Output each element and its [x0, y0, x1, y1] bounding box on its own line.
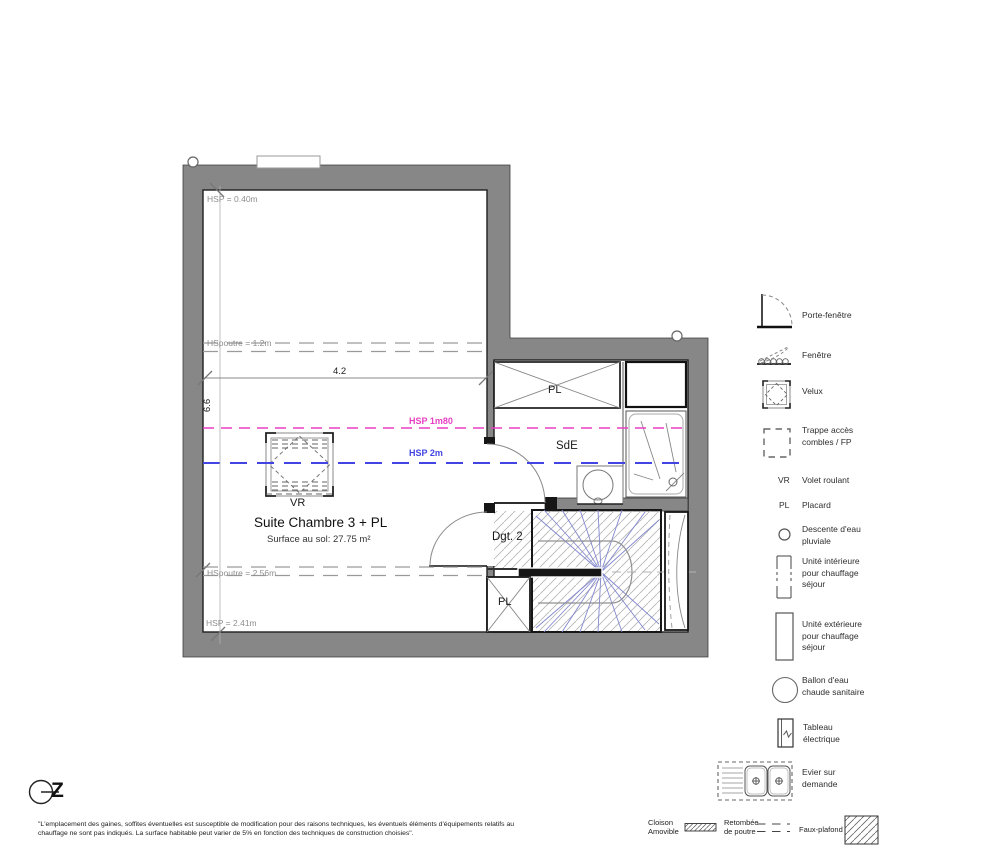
room-title: Suite Chambre 3 + PL — [254, 515, 387, 530]
legend-retombee-poutre: Retombée de poutre — [724, 818, 759, 836]
height-label-hsp2m: HSP 2m — [409, 448, 443, 458]
floor-plan-page: HSP = 0.40m HSpoutre = 1.2m 4.2 6.6 HSP … — [0, 0, 1000, 857]
cloison-amovible-icon — [685, 824, 716, 832]
velux-window — [266, 433, 333, 496]
legend-unite-interieure: Unité intérieure pour chauffage séjour — [802, 556, 860, 591]
evier-icon — [718, 762, 792, 800]
roof-notch — [257, 156, 320, 168]
fenetre-icon — [757, 347, 791, 364]
legend-porte-fenetre: Porte-fenêtre — [802, 310, 852, 322]
rainwater-downpipe-icon — [188, 157, 198, 167]
sde-label: SdE — [556, 440, 578, 452]
height-label-hsp1m80: HSP 1m80 — [409, 416, 453, 426]
legend-velux: Velux — [802, 386, 823, 398]
legend-cloison-amovible: Cloison Amovible — [648, 818, 679, 836]
trappe-icon — [764, 429, 790, 457]
legend-descente-eau: Descente d'eau pluviale — [802, 524, 861, 547]
vr-label: VR — [290, 497, 305, 509]
placard-bottom-label: PL — [498, 596, 511, 608]
dimension-height: 6.6 — [202, 396, 213, 415]
door-sde — [487, 444, 545, 503]
velux-icon — [763, 381, 790, 408]
legend-ballon: Ballon d'eau chaude sanitaire — [802, 675, 864, 698]
legend-fenetre: Fenêtre — [802, 350, 831, 362]
placard-top-label: PL — [548, 384, 561, 396]
tableau-electrique-icon — [778, 719, 793, 747]
legend-vr-abbr: VR — [778, 475, 790, 485]
dimension-width: 4.2 — [330, 366, 349, 377]
height-label-hspoutre12: HSpoutre = 1.2m — [207, 338, 272, 348]
legend-faux-plafond: Faux-plafond — [799, 825, 843, 834]
dgt2-label: Dgt. 2 — [492, 531, 523, 543]
legend-volet-roulant: Volet roulant — [802, 475, 849, 487]
legend-tableau: Tableau électrique — [803, 722, 840, 745]
ballon-icon — [773, 678, 798, 703]
retombee-poutre-icon — [757, 824, 790, 832]
legend-placard: Placard — [802, 500, 831, 512]
height-label-hsp040: HSP = 0.40m — [207, 194, 258, 204]
descente-eau-icon — [779, 529, 790, 540]
cabinet-box — [626, 362, 686, 407]
porte-fenetre-icon — [757, 294, 792, 327]
door-bedroom — [429, 512, 487, 566]
height-label-hsp241: HSP = 2.41m — [206, 618, 257, 628]
washbasin — [577, 466, 623, 504]
legend-evier: Evier sur demande — [802, 767, 837, 790]
partition-wall — [484, 437, 495, 566]
room-area: Surface au sol: 27.75 m² — [267, 534, 371, 545]
rainwater-downpipe-icon — [672, 331, 682, 341]
height-label-hspoutre256: HSpoutre = 2.56m — [207, 568, 276, 578]
legend-trappe: Trappe accès combles / FP — [802, 425, 853, 448]
faux-plafond-icon — [845, 816, 878, 844]
legend-pl-abbr: PL — [779, 500, 789, 510]
unite-interieure-icon — [777, 556, 791, 598]
disclaimer-text: "L'emplacement des gaines, soffites éven… — [38, 820, 516, 838]
legend-unite-exterieure: Unité extérieure pour chauffage séjour — [802, 619, 862, 654]
unite-exterieure-unit — [665, 512, 688, 630]
shower — [626, 411, 686, 497]
unite-exterieure-icon — [776, 613, 793, 660]
north-letter: Z — [51, 779, 64, 803]
